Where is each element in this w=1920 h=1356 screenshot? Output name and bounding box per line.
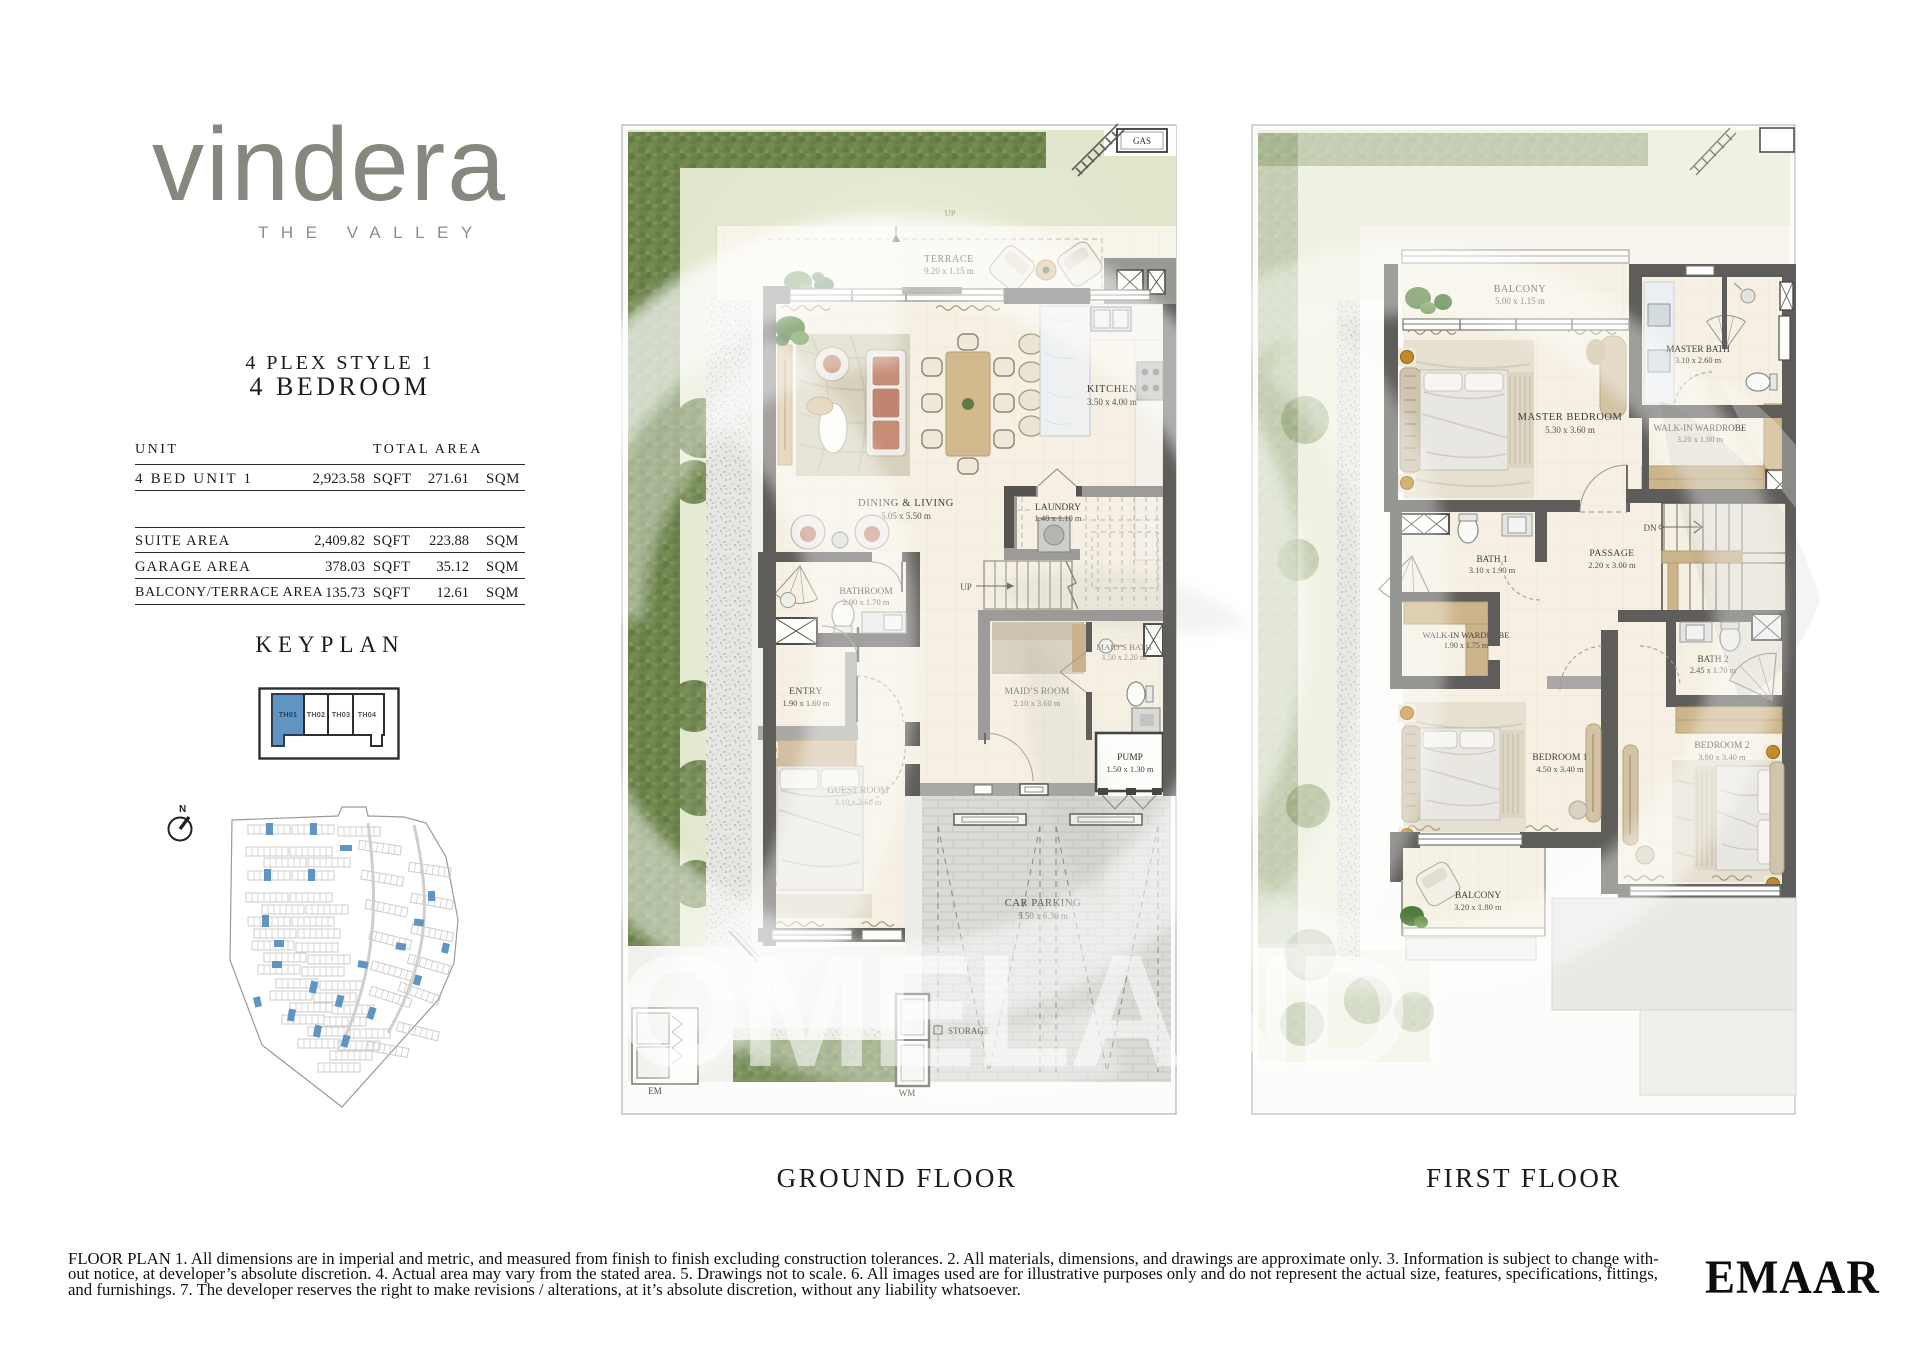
svg-text:HOMELAND: HOMELAND xyxy=(505,921,1410,1100)
